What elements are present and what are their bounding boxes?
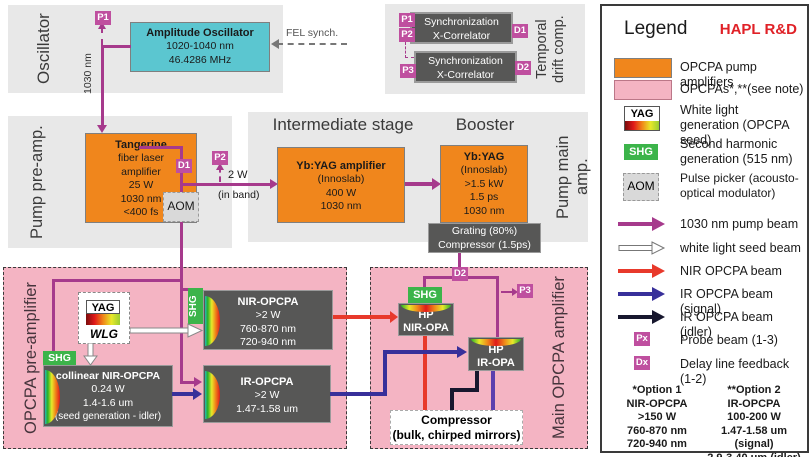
diagram-canvas: Oscillator Temporal drift comp. Pump pre… — [0, 0, 812, 457]
legend-panel: Legend HAPL R&D OPCPA pump amplifiers OP… — [600, 4, 809, 453]
legend-title: Legend — [624, 18, 687, 40]
yb-yag-amplifier-box: Yb:YAG amplifier (Innoslab) 400 W 1030 n… — [277, 147, 405, 223]
legend-px-marker: Px — [634, 332, 650, 346]
shg-main-label: SHG — [408, 287, 442, 303]
delay-marker-sync-d2: D2 — [515, 61, 531, 75]
ir-opcpa-box: IR-OPCPA >2 W 1.47-1.58 um — [203, 365, 331, 423]
pump-pre-amp-label: Pump pre-amp. — [28, 122, 47, 242]
pump-main-amp-label: Pump main amp. — [554, 116, 592, 238]
legend-shg-icon: SHG — [624, 144, 658, 160]
legend-yag-icon: YAG — [624, 106, 660, 131]
hp-ir-opa-box: HP IR-OPA — [468, 337, 524, 371]
delay-marker-tangerine-d1: D1 — [176, 159, 192, 173]
legend-orange-swatch — [614, 58, 672, 78]
probe-marker-sync-p2: P2 — [399, 28, 415, 42]
legend-item-label: Second harmonic generation (515 nm) — [680, 137, 800, 167]
white-light-beam-down — [83, 343, 98, 366]
aom-box: AOM — [163, 192, 199, 222]
shg-collinear-label: SHG — [43, 351, 76, 366]
yag-crystal-label: YAG — [86, 300, 120, 314]
legend-marker-label: Probe beam (1-3) — [680, 333, 778, 348]
probe-marker-pump-p2: P2 — [212, 151, 228, 165]
wlg-label: WLG — [79, 327, 129, 341]
probe-marker-main-p3: P3 — [517, 284, 533, 298]
ir-signal-beam-arrow — [618, 287, 666, 301]
probe-marker-p1: P1 — [95, 11, 111, 25]
temporal-drift-label: Temporal drift comp. — [534, 8, 568, 90]
yb-yag-booster-box: Yb:YAG (Innoslab) >1.5 kW 1.5 ps 1030 nm — [440, 145, 528, 223]
probe-marker-sync-p1: P1 — [399, 13, 415, 27]
collinear-nir-opcpa-box: collinear NIR-OPCPA 0.24 W 1.4-1.6 um (s… — [43, 365, 173, 427]
in-band-label: (in band) — [218, 189, 259, 201]
wlg-box: YAG WLG — [78, 292, 130, 344]
legend-item-label: OPCPAs*,**(see note) — [680, 82, 803, 97]
white-light-beam-right — [130, 323, 204, 338]
legend-beam-label: NIR OPCPA beam — [680, 264, 782, 279]
shg-nir-label: SHG — [188, 288, 203, 324]
probe-marker-sync-p3: P3 — [400, 64, 416, 78]
osc-wavelength-label: 1030 nm — [82, 48, 94, 100]
legend-item-label: Pulse picker (acousto-optical modulator) — [680, 171, 808, 201]
legend-aom-icon: AOM — [623, 173, 659, 201]
delay-marker-sync-d1: D1 — [512, 24, 528, 38]
amplitude-oscillator-box: Amplitude Oscillator 1020-1040 nm 46.428… — [130, 22, 270, 72]
intermediate-stage-heading: Intermediate stage — [268, 115, 418, 135]
legend-beam-label: white light seed beam — [680, 241, 801, 256]
grating-compressor-box: Grating (80%) Compressor (1.5ps) — [428, 223, 541, 253]
legend-pink-swatch — [614, 80, 672, 100]
pump-power-label: 2 W — [228, 169, 248, 181]
project-title: HAPL R&D — [720, 21, 797, 38]
legend-dx-marker: Dx — [634, 356, 650, 370]
legend-marker-label: Delay line feedback (1-2) — [680, 357, 807, 387]
sync-correlator-1-box: Synchronization X-Correlator — [410, 12, 513, 44]
hp-nir-opa-box: HP NIR-OPA — [398, 303, 454, 336]
wlg-rainbow — [86, 314, 120, 325]
sync-correlator-2-box: Synchronization X-Correlator — [414, 51, 517, 83]
ir-idler-beam-arrow — [618, 310, 666, 324]
nir-opcpa-box: NIR-OPCPA >2 W 760-870 nm 720-940 nm — [203, 290, 333, 350]
nir-beam-arrow — [618, 264, 666, 278]
fel-arrowhead — [271, 39, 279, 49]
pump-beam-arrow — [618, 217, 666, 231]
opcpa-pre-amplifier-label: OPCPA pre-amplifier — [22, 274, 41, 442]
fel-sync-label: FEL synch. — [286, 27, 338, 39]
final-compressor-box: Compressor (bulk, chirped mirrors) — [390, 410, 523, 445]
delay-marker-main-d2: D2 — [452, 267, 468, 281]
legend-beam-label: 1030 nm pump beam — [680, 217, 798, 232]
main-opcpa-amplifier-label: Main OPCPA amplifier — [550, 274, 569, 442]
booster-heading: Booster — [442, 115, 528, 135]
legend-note-option2: **Option 2 IR-OPCPA 100-200 W 1.47-1.58 … — [702, 384, 806, 457]
oscillator-label: Oscillator — [34, 10, 54, 88]
legend-note-option1: *Option 1 NIR-OPCPA >150 W 760-870 nm 72… — [610, 384, 704, 452]
pump-arrowhead — [97, 125, 107, 133]
white-light-beam-arrow — [618, 241, 666, 255]
